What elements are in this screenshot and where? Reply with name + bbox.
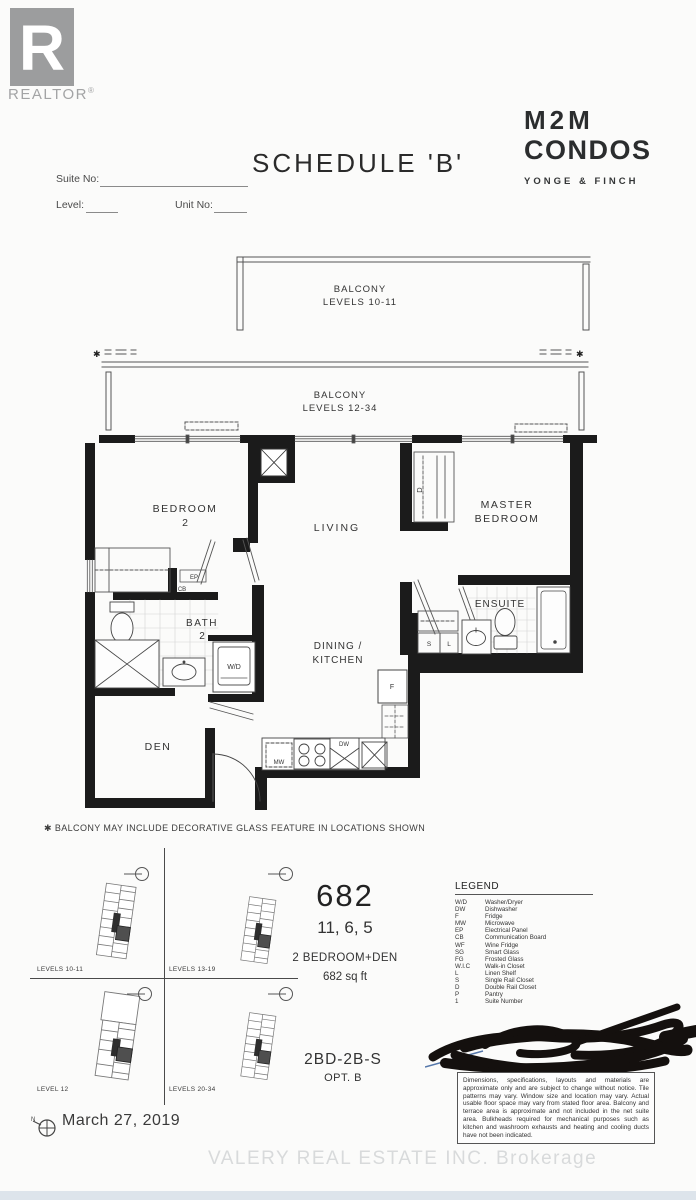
legend-row: DWDishwasher	[455, 906, 593, 913]
ep-label: EP	[190, 575, 198, 581]
floorplan-document-page: R REALTOR® SCHEDULE 'B' M2M CONDOS YONGE…	[0, 0, 696, 1200]
glass-marks-left	[105, 350, 136, 354]
legend-abbr: L	[455, 970, 485, 977]
unit-no-line	[214, 211, 247, 213]
bath-number: 2	[199, 631, 205, 642]
legend-abbr: F	[455, 913, 485, 920]
legend-abbr: EP	[455, 927, 485, 934]
realtor-wordmark: REALTOR®	[8, 86, 95, 103]
legend-desc: Washer/Dryer	[485, 899, 523, 906]
keyplan-levels-20-34	[228, 986, 298, 1086]
keyplan-grid-vertical	[164, 848, 165, 1105]
keyplan-label-3: LEVEL 12	[37, 1086, 68, 1093]
balcony-lower-levels: LEVELS 12-34	[303, 403, 378, 414]
keyplan-label-2: LEVELS 13-19	[169, 966, 216, 973]
legend-row: FFridge	[455, 913, 593, 920]
d-closet	[414, 452, 454, 522]
d-closet-label: D	[415, 487, 424, 493]
legend-desc: Microwave	[485, 920, 515, 927]
balcony-upper-levels: LEVELS 10-11	[323, 297, 397, 308]
legend: LEGEND W/DWasher/Dryer DWDishwasher FFri…	[455, 881, 593, 1005]
ensuite-toilet	[494, 609, 517, 650]
legend-row: FGFrosted Glass	[455, 956, 593, 963]
svg-text:R: R	[19, 12, 65, 84]
legend-abbr: S	[455, 977, 485, 984]
glass-star-left: ✱	[93, 349, 101, 359]
legend-abbr: WF	[455, 942, 485, 949]
legend-desc: Walk-in Closet	[485, 963, 525, 970]
glass-marks-right	[540, 350, 571, 354]
sl-closets	[418, 611, 458, 653]
legend-desc: Smart Glass	[485, 949, 519, 956]
keyplan-label-4: LEVELS 20-34	[169, 1086, 216, 1093]
wd-label: W/D	[227, 664, 241, 671]
legend-desc: Fridge	[485, 913, 503, 920]
north-compass-icon: N	[28, 1112, 60, 1144]
legend-desc: Frosted Glass	[485, 956, 524, 963]
unit-option: OPT. B	[273, 1072, 413, 1084]
unit-model: 2BD-2B-S	[273, 1051, 413, 1069]
plan-date: March 27, 2019	[62, 1112, 180, 1130]
bath2-shower	[95, 640, 159, 688]
brand-m2m: M2M	[524, 106, 652, 134]
realtor-logo: R	[10, 8, 74, 91]
door-leaves	[197, 538, 475, 720]
legend-row: WFWine Fridge	[455, 942, 593, 949]
page-title: SCHEDULE 'B'	[252, 148, 464, 179]
suite-no-line	[100, 185, 248, 187]
legend-row: EPElectrical Panel	[455, 927, 593, 934]
legend-row: CBCommunication Board	[455, 934, 593, 941]
kitchen-lower-counter	[382, 705, 408, 738]
legend-desc: Linen Shelf	[485, 970, 516, 977]
legend-abbr: FG	[455, 956, 485, 963]
legend-abbr: D	[455, 984, 485, 991]
unit-suites: 11, 6, 5	[295, 918, 395, 938]
legend-row: W/DWasher/Dryer	[455, 899, 593, 906]
legend-abbr: DW	[455, 906, 485, 913]
level-label: Level:	[56, 199, 84, 211]
legend-desc: Electrical Panel	[485, 927, 528, 934]
legend-desc: Wine Fridge	[485, 942, 518, 949]
bedroom2-label: BEDROOM	[153, 503, 218, 515]
legend-row: W.I.CWalk-in Closet	[455, 963, 593, 970]
keyplan-levels-10-11	[82, 866, 152, 966]
unit-type: 2 BEDROOM+DEN	[270, 952, 420, 964]
north-label: N	[31, 1117, 35, 1123]
scan-edge-bar	[0, 1191, 696, 1200]
balcony-upper	[237, 257, 590, 330]
living-label: LIVING	[314, 522, 360, 534]
disclaimer-box: Dimensions, specifications, layouts and …	[457, 1072, 655, 1144]
legend-row: LLinen Shelf	[455, 970, 593, 977]
glass-star-right: ✱	[576, 349, 584, 359]
legend-row: MWMicrowave	[455, 920, 593, 927]
keyplan-label-1: LEVELS 10-11	[37, 966, 83, 973]
den-label: DEN	[145, 741, 172, 753]
balcony-footnote: ✱ BALCONY MAY INCLUDE DECORATIVE GLASS F…	[44, 823, 425, 834]
bed-bedroom2	[95, 548, 170, 592]
unit-no-label: Unit No:	[175, 199, 213, 211]
entry-door	[213, 754, 260, 801]
bedroom2-number: 2	[182, 517, 188, 529]
brand-condos: CONDOS	[524, 134, 652, 166]
dining-label-2: KITCHEN	[313, 655, 364, 666]
legend-row: SSingle Rail Closet	[455, 977, 593, 984]
dining-label-1: DINING /	[314, 641, 363, 652]
keyplan-level-12	[83, 986, 153, 1088]
bath2-sink	[163, 658, 205, 686]
floor-plan: BALCONY LEVELS 10-11 ✱ ✱	[85, 250, 600, 820]
legend-title: LEGEND	[455, 881, 593, 895]
ensuite-tub	[537, 587, 570, 653]
keyplan-grid-horizontal	[30, 978, 298, 979]
brand-block: M2M CONDOS YONGE & FINCH	[524, 106, 652, 187]
cb-label: CB	[178, 587, 186, 593]
keyplan-levels-13-19	[228, 866, 298, 966]
registered-mark: ®	[88, 86, 95, 95]
brokerage-watermark: VALERY REAL ESTATE INC. Brokerage	[208, 1148, 597, 1170]
legend-abbr: MW	[455, 920, 485, 927]
dw-label: DW	[339, 742, 349, 748]
master-label-1: MASTER	[481, 499, 534, 511]
suite-no-label: Suite No:	[56, 173, 99, 185]
legend-row: SGSmart Glass	[455, 949, 593, 956]
shaft-box	[261, 449, 287, 476]
legend-abbr: SG	[455, 949, 485, 956]
master-label-2: BEDROOM	[475, 513, 540, 525]
legend-desc: Dishwasher	[485, 906, 517, 913]
mw-label: MW	[274, 760, 285, 766]
legend-abbr: W/D	[455, 899, 485, 906]
balcony-upper-title: BALCONY	[334, 284, 386, 295]
l-closet-label: L	[447, 641, 451, 648]
legend-abbr: W.I.C	[455, 963, 485, 970]
bath-label: BATH	[186, 618, 218, 629]
legend-desc: Double Rail Closet	[485, 984, 536, 991]
legend-desc: Communication Board	[485, 934, 546, 941]
unit-area: 682 sq ft	[270, 971, 420, 983]
level-line	[86, 211, 118, 213]
fridge-label: F	[390, 684, 394, 691]
ensuite-label: ENSUITE	[475, 599, 525, 610]
balcony-lower-title: BALCONY	[314, 390, 366, 401]
unit-number: 682	[295, 878, 395, 914]
s-closet-label: S	[427, 641, 432, 648]
ensuite-sink	[462, 620, 491, 654]
legend-abbr: CB	[455, 934, 485, 941]
bath2-toilet	[110, 602, 134, 643]
brand-subtitle: YONGE & FINCH	[524, 176, 652, 187]
legend-desc: Single Rail Closet	[485, 977, 534, 984]
legend-row: DDouble Rail Closet	[455, 984, 593, 991]
